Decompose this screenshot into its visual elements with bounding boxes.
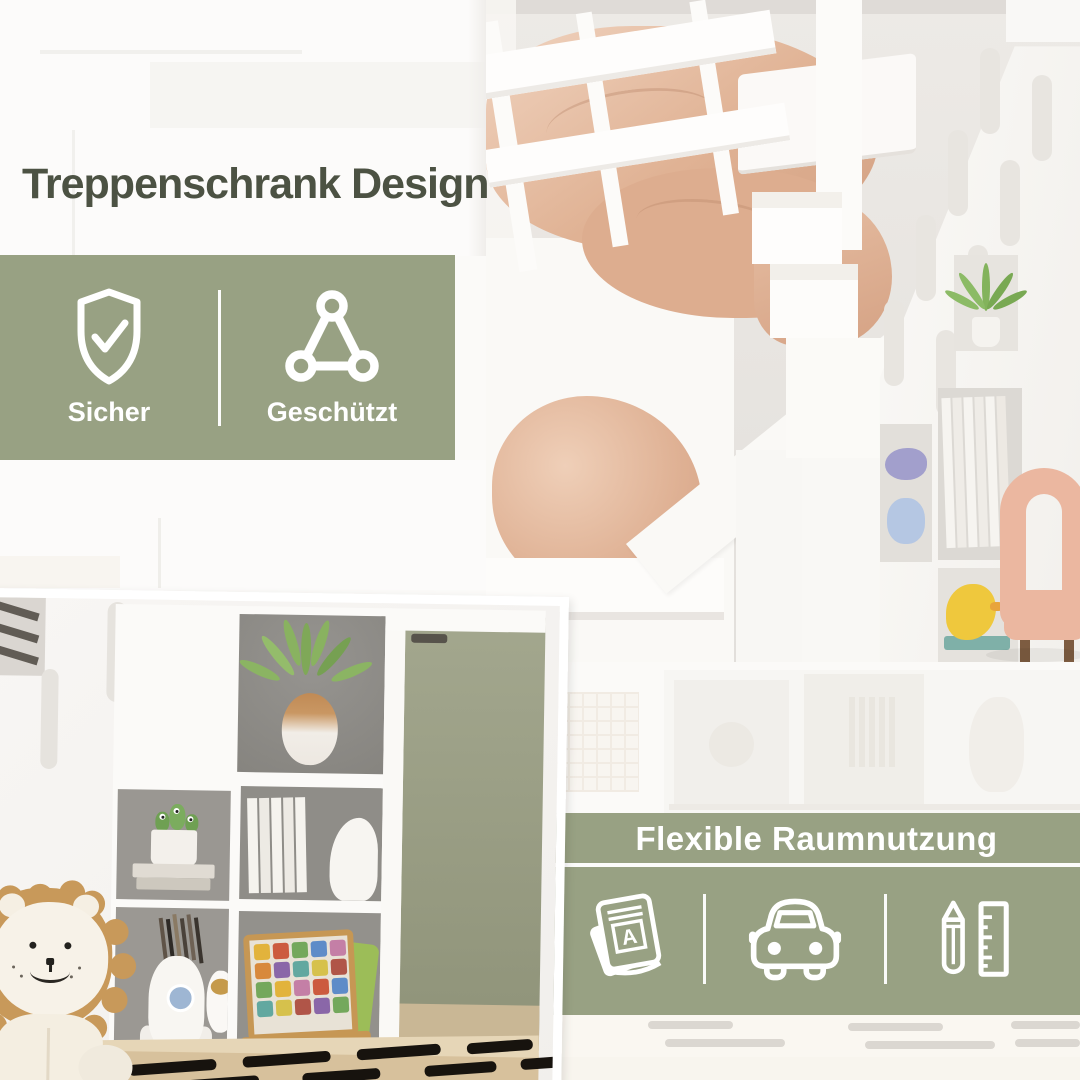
background-midleft (0, 460, 486, 590)
cube-white-books (239, 786, 383, 901)
flex-icon-row: A (553, 870, 1080, 1008)
lion-plush (0, 881, 135, 1080)
page-title: Treppenschrank Design (22, 160, 502, 209)
triangle-nodes-icon (280, 287, 384, 387)
car-icon (706, 893, 884, 985)
background-faded-shelf (549, 662, 1080, 813)
background-faded-bedbase (553, 1015, 1080, 1080)
safety-item-label: Geschützt (267, 397, 398, 428)
chair (998, 468, 1080, 662)
safety-banner: Sicher Geschützt (0, 255, 455, 460)
pencil-ruler-icon (887, 891, 1065, 987)
background-topleft (0, 0, 486, 256)
bed-platform (68, 1028, 539, 1080)
bunk-bed-photo (486, 0, 1080, 662)
cube-shelf-photo (0, 588, 569, 1080)
cube-unit (108, 604, 399, 1078)
flexible-use-banner: Flexible Raumnutzung A (553, 813, 1080, 1015)
cube-plant-vase (237, 614, 385, 774)
banner-underline (553, 863, 1080, 867)
safety-item-sicher: Sicher (0, 287, 218, 428)
safety-item-label: Sicher (68, 397, 151, 428)
flex-banner-title: Flexible Raumnutzung (553, 813, 1080, 858)
cubby-plush (880, 424, 932, 562)
poster-canvas: Treppenschrank Design Sicher (0, 0, 1080, 1080)
safety-item-geschuetzt: Geschützt (221, 287, 443, 428)
stacked-books-icon: A (553, 887, 703, 991)
cubby-plant (954, 255, 1018, 351)
wardrobe-section (378, 608, 545, 1080)
shield-check-icon (71, 287, 147, 387)
